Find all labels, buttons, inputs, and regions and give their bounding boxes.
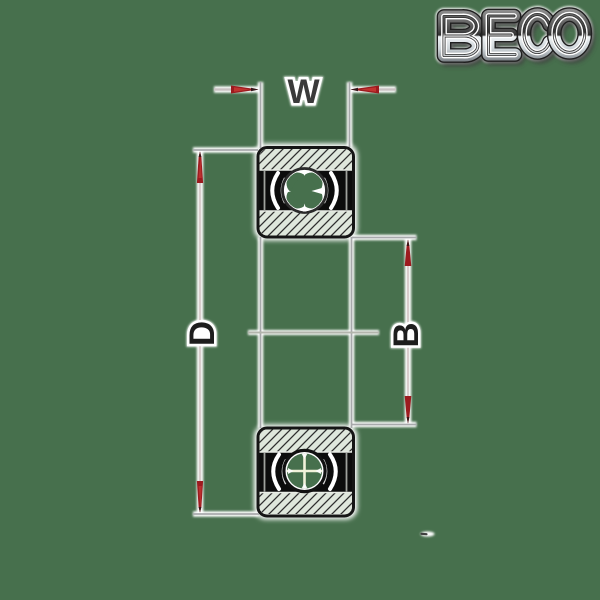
svg-text:W: W bbox=[287, 73, 320, 111]
svg-text:B: B bbox=[387, 322, 426, 347]
svg-text:D: D bbox=[183, 321, 222, 346]
